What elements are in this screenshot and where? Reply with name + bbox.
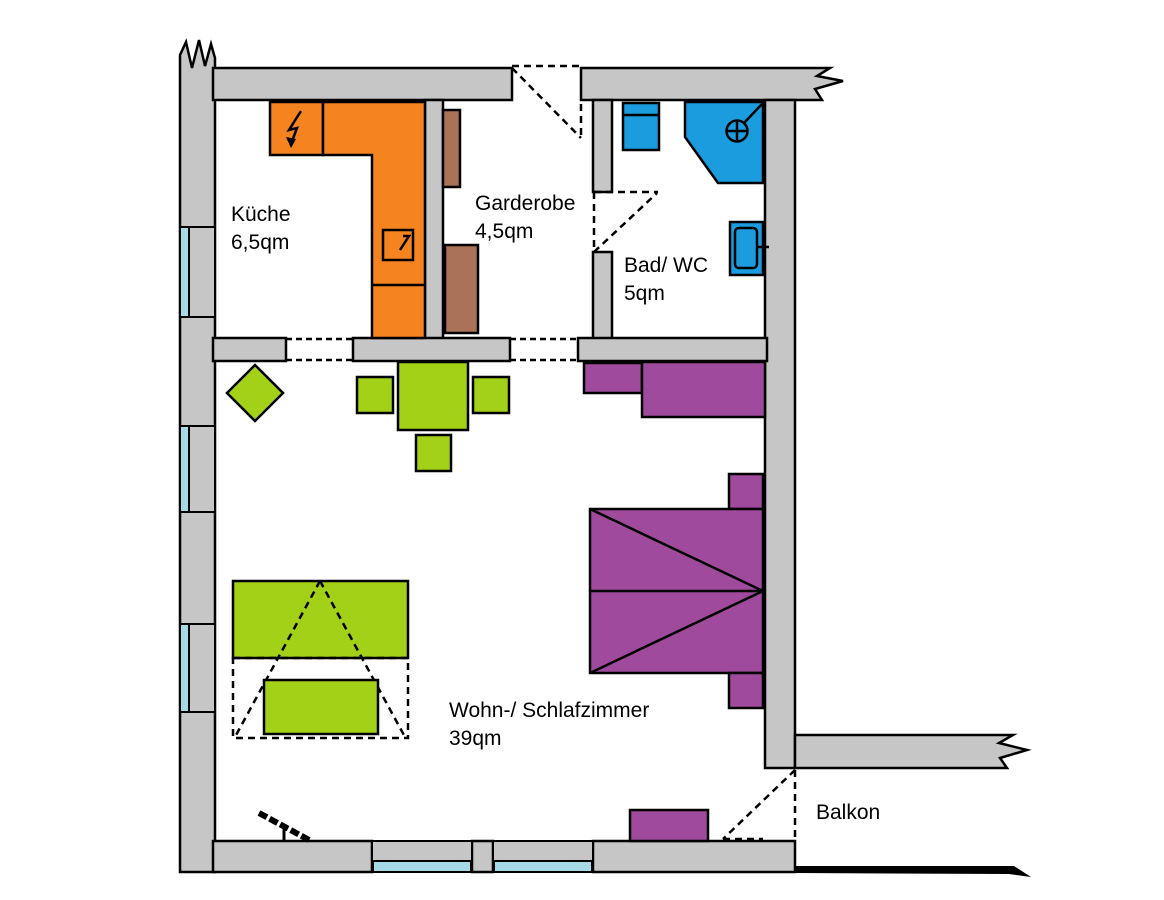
window-left-3 (180, 624, 215, 712)
toilet (730, 222, 769, 275)
chair-right (473, 377, 509, 413)
garderobe-opening (510, 339, 578, 360)
wall-garderobe-bad-upper (593, 100, 612, 192)
shower-head-icon (727, 121, 748, 142)
dresser (630, 810, 708, 841)
entrance-door-swing (512, 66, 581, 138)
bath-door-swing (594, 192, 658, 252)
chair-left (357, 377, 393, 413)
bed (590, 509, 763, 673)
room-area-bad: 5qm (624, 282, 665, 305)
window-bottom-1 (372, 841, 472, 872)
wall-band-mid (353, 338, 510, 361)
sofa (233, 581, 408, 658)
garderobe-shelf-lower (445, 245, 478, 333)
nightstand-bottom (729, 673, 763, 708)
balcony-floor-line (795, 866, 1031, 877)
chair-bottom (416, 435, 451, 471)
dining-table (398, 362, 468, 430)
closet-small (584, 363, 642, 393)
room-area-garderobe: 4,5qm (475, 220, 533, 243)
room-label-bad: Bad/ WC (624, 254, 708, 277)
room-area-wohnzimmer: 39qm (449, 727, 502, 750)
floorplan-svg: Küche 6,5qm Garderobe 4,5qm Bad/ WC 5qm … (0, 0, 1164, 900)
wall-right (765, 100, 795, 768)
garderobe-shelf-upper (443, 110, 460, 187)
closet-large (642, 362, 765, 417)
room-label-balkon: Balkon (816, 801, 880, 824)
tv-stand (259, 813, 311, 842)
wall-garderobe-bad-lower (593, 252, 612, 340)
room-label-garderobe: Garderobe (475, 192, 575, 215)
wall-top-left (213, 68, 512, 100)
kitchen-counter (323, 102, 425, 338)
nightstand-top (729, 474, 763, 509)
wall-bottom-right (593, 841, 795, 872)
kitchen-opening (286, 339, 353, 360)
wall-balcony-top (795, 735, 1027, 768)
sofa-table (264, 680, 378, 734)
wall-band-right (578, 338, 767, 361)
room-label-wohnzimmer: Wohn-/ Schlafzimmer (449, 699, 649, 722)
window-left-1 (180, 227, 215, 317)
room-label-kueche: Küche (231, 203, 291, 226)
bath-sink (623, 103, 659, 150)
floorplan-canvas: Küche 6,5qm Garderobe 4,5qm Bad/ WC 5qm … (0, 0, 1164, 900)
wall-kitchen-garderobe (425, 100, 443, 340)
wall-bottom-left (213, 841, 372, 872)
window-bottom-2 (493, 841, 593, 872)
balcony-door-swing (723, 770, 795, 839)
window-left-2 (180, 426, 215, 512)
room-area-kueche: 6,5qm (231, 231, 289, 254)
plant-diamond (227, 365, 283, 421)
wall-bottom-mid (472, 841, 493, 872)
wall-band-left (213, 338, 286, 361)
wall-top-right (581, 68, 843, 100)
